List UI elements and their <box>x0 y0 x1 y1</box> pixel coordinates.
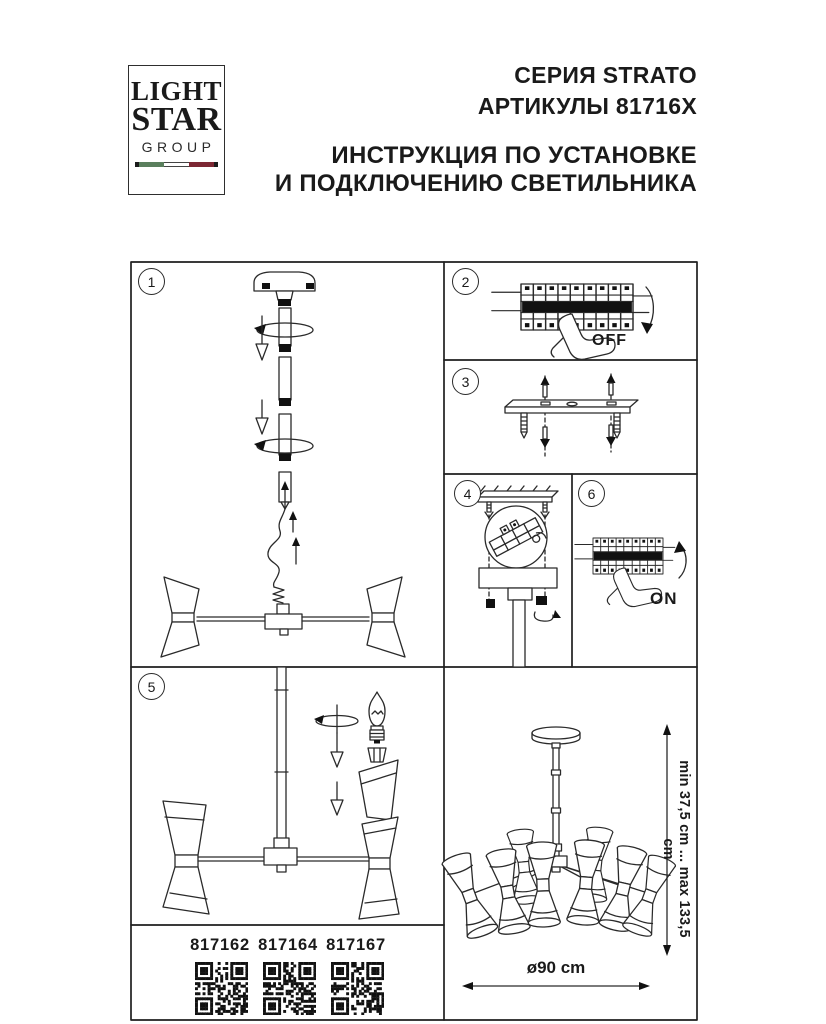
diameter-label: ø90 cm <box>494 958 618 978</box>
flag-white <box>164 162 189 167</box>
article-number: 817167 <box>324 936 388 955</box>
brand-logo: LIGHT STAR GROUP <box>128 65 225 195</box>
step-4-canopy-fixing-drawing <box>478 486 561 667</box>
logo-word-group: GROUP <box>129 139 224 155</box>
qr-code <box>331 962 384 1015</box>
instruction-sheet: LIGHT STAR GROUP СЕРИЯ STRATO АРТИКУЛЫ 8… <box>0 0 826 1024</box>
step-3-bracket-drawing <box>505 374 638 456</box>
flag-green <box>139 162 164 167</box>
step-2-power-off-drawing <box>492 284 654 359</box>
step-5-badge: 5 <box>138 673 165 700</box>
article-range: АРТИКУЛЫ 81716X <box>478 91 697 122</box>
title-line-2: И ПОДКЛЮЧЕНИЮ СВЕТИЛЬНИКА <box>275 170 697 198</box>
flag-cap-right <box>214 162 218 167</box>
step-2-badge: 2 <box>452 268 479 295</box>
flag-red <box>189 162 214 167</box>
article-number: 817164 <box>256 936 320 955</box>
qr-code <box>263 962 316 1015</box>
height-range-label: min 37,5 cm ... max 133,5 cm <box>660 757 692 941</box>
step-1-badge: 1 <box>138 268 165 295</box>
title-line-1: ИНСТРУКЦИЯ ПО УСТАНОВКЕ <box>275 142 697 170</box>
chandelier-dimensions-drawing <box>440 724 678 990</box>
series-header: СЕРИЯ STRATO АРТИКУЛЫ 81716X <box>478 60 697 122</box>
on-label: ON <box>650 589 678 609</box>
article-number: 817162 <box>188 936 252 955</box>
off-label: OFF <box>592 332 627 350</box>
step-1-rod-assembly-drawing <box>161 272 405 657</box>
diameter-dimension-line <box>462 982 650 990</box>
step-3-badge: 3 <box>452 368 479 395</box>
document-title: ИНСТРУКЦИЯ ПО УСТАНОВКЕ И ПОДКЛЮЧЕНИЮ СВ… <box>275 142 697 198</box>
step-6-badge: 6 <box>578 480 605 507</box>
step-4-badge: 4 <box>454 480 481 507</box>
series-name: СЕРИЯ STRATO <box>478 60 697 91</box>
logo-word-star: STAR <box>129 104 224 135</box>
qr-code <box>195 962 248 1015</box>
step-5-shade-bulb-drawing <box>163 667 399 919</box>
italian-flag-bar <box>135 162 219 167</box>
